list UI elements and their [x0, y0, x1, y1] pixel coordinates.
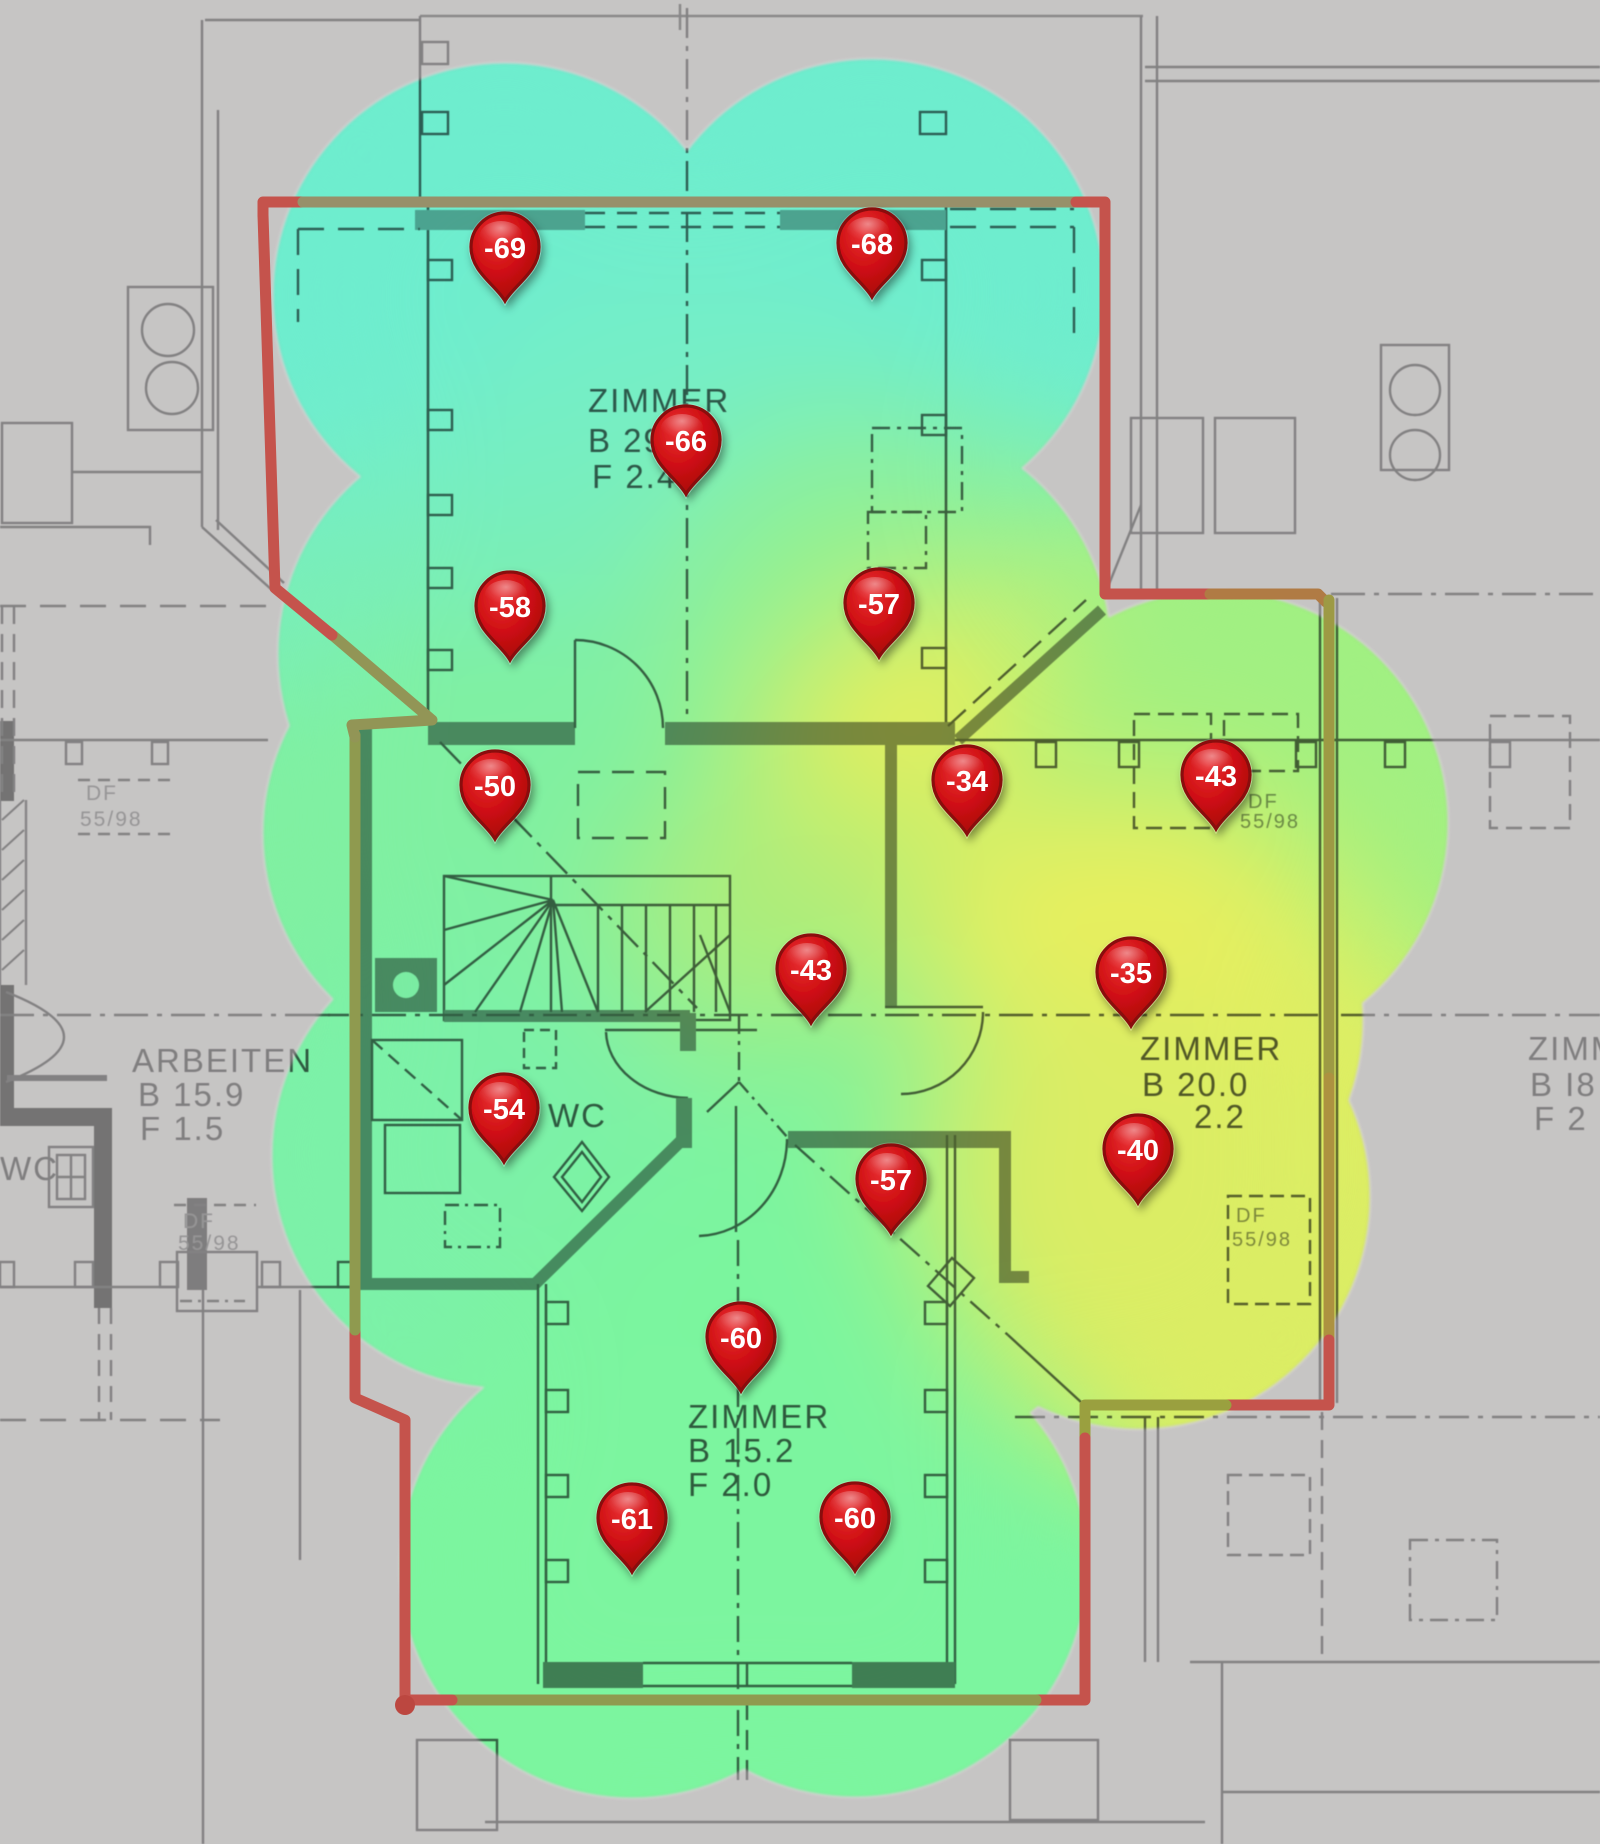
svg-text:-50: -50 [474, 771, 516, 803]
svg-text:-66: -66 [665, 426, 707, 458]
svg-text:-34: -34 [946, 766, 988, 798]
svg-text:-58: -58 [489, 592, 531, 624]
svg-text:-61: -61 [611, 1504, 653, 1536]
svg-text:-68: -68 [851, 229, 893, 261]
svg-text:-69: -69 [484, 233, 526, 265]
svg-text:-60: -60 [720, 1323, 762, 1355]
svg-text:-40: -40 [1117, 1135, 1159, 1167]
svg-text:-43: -43 [1195, 761, 1237, 793]
svg-text:-60: -60 [834, 1503, 876, 1535]
svg-text:-43: -43 [790, 955, 832, 987]
svg-text:-54: -54 [483, 1094, 525, 1126]
svg-text:-35: -35 [1110, 958, 1152, 990]
svg-text:-57: -57 [858, 589, 900, 621]
svg-text:-57: -57 [870, 1165, 912, 1197]
